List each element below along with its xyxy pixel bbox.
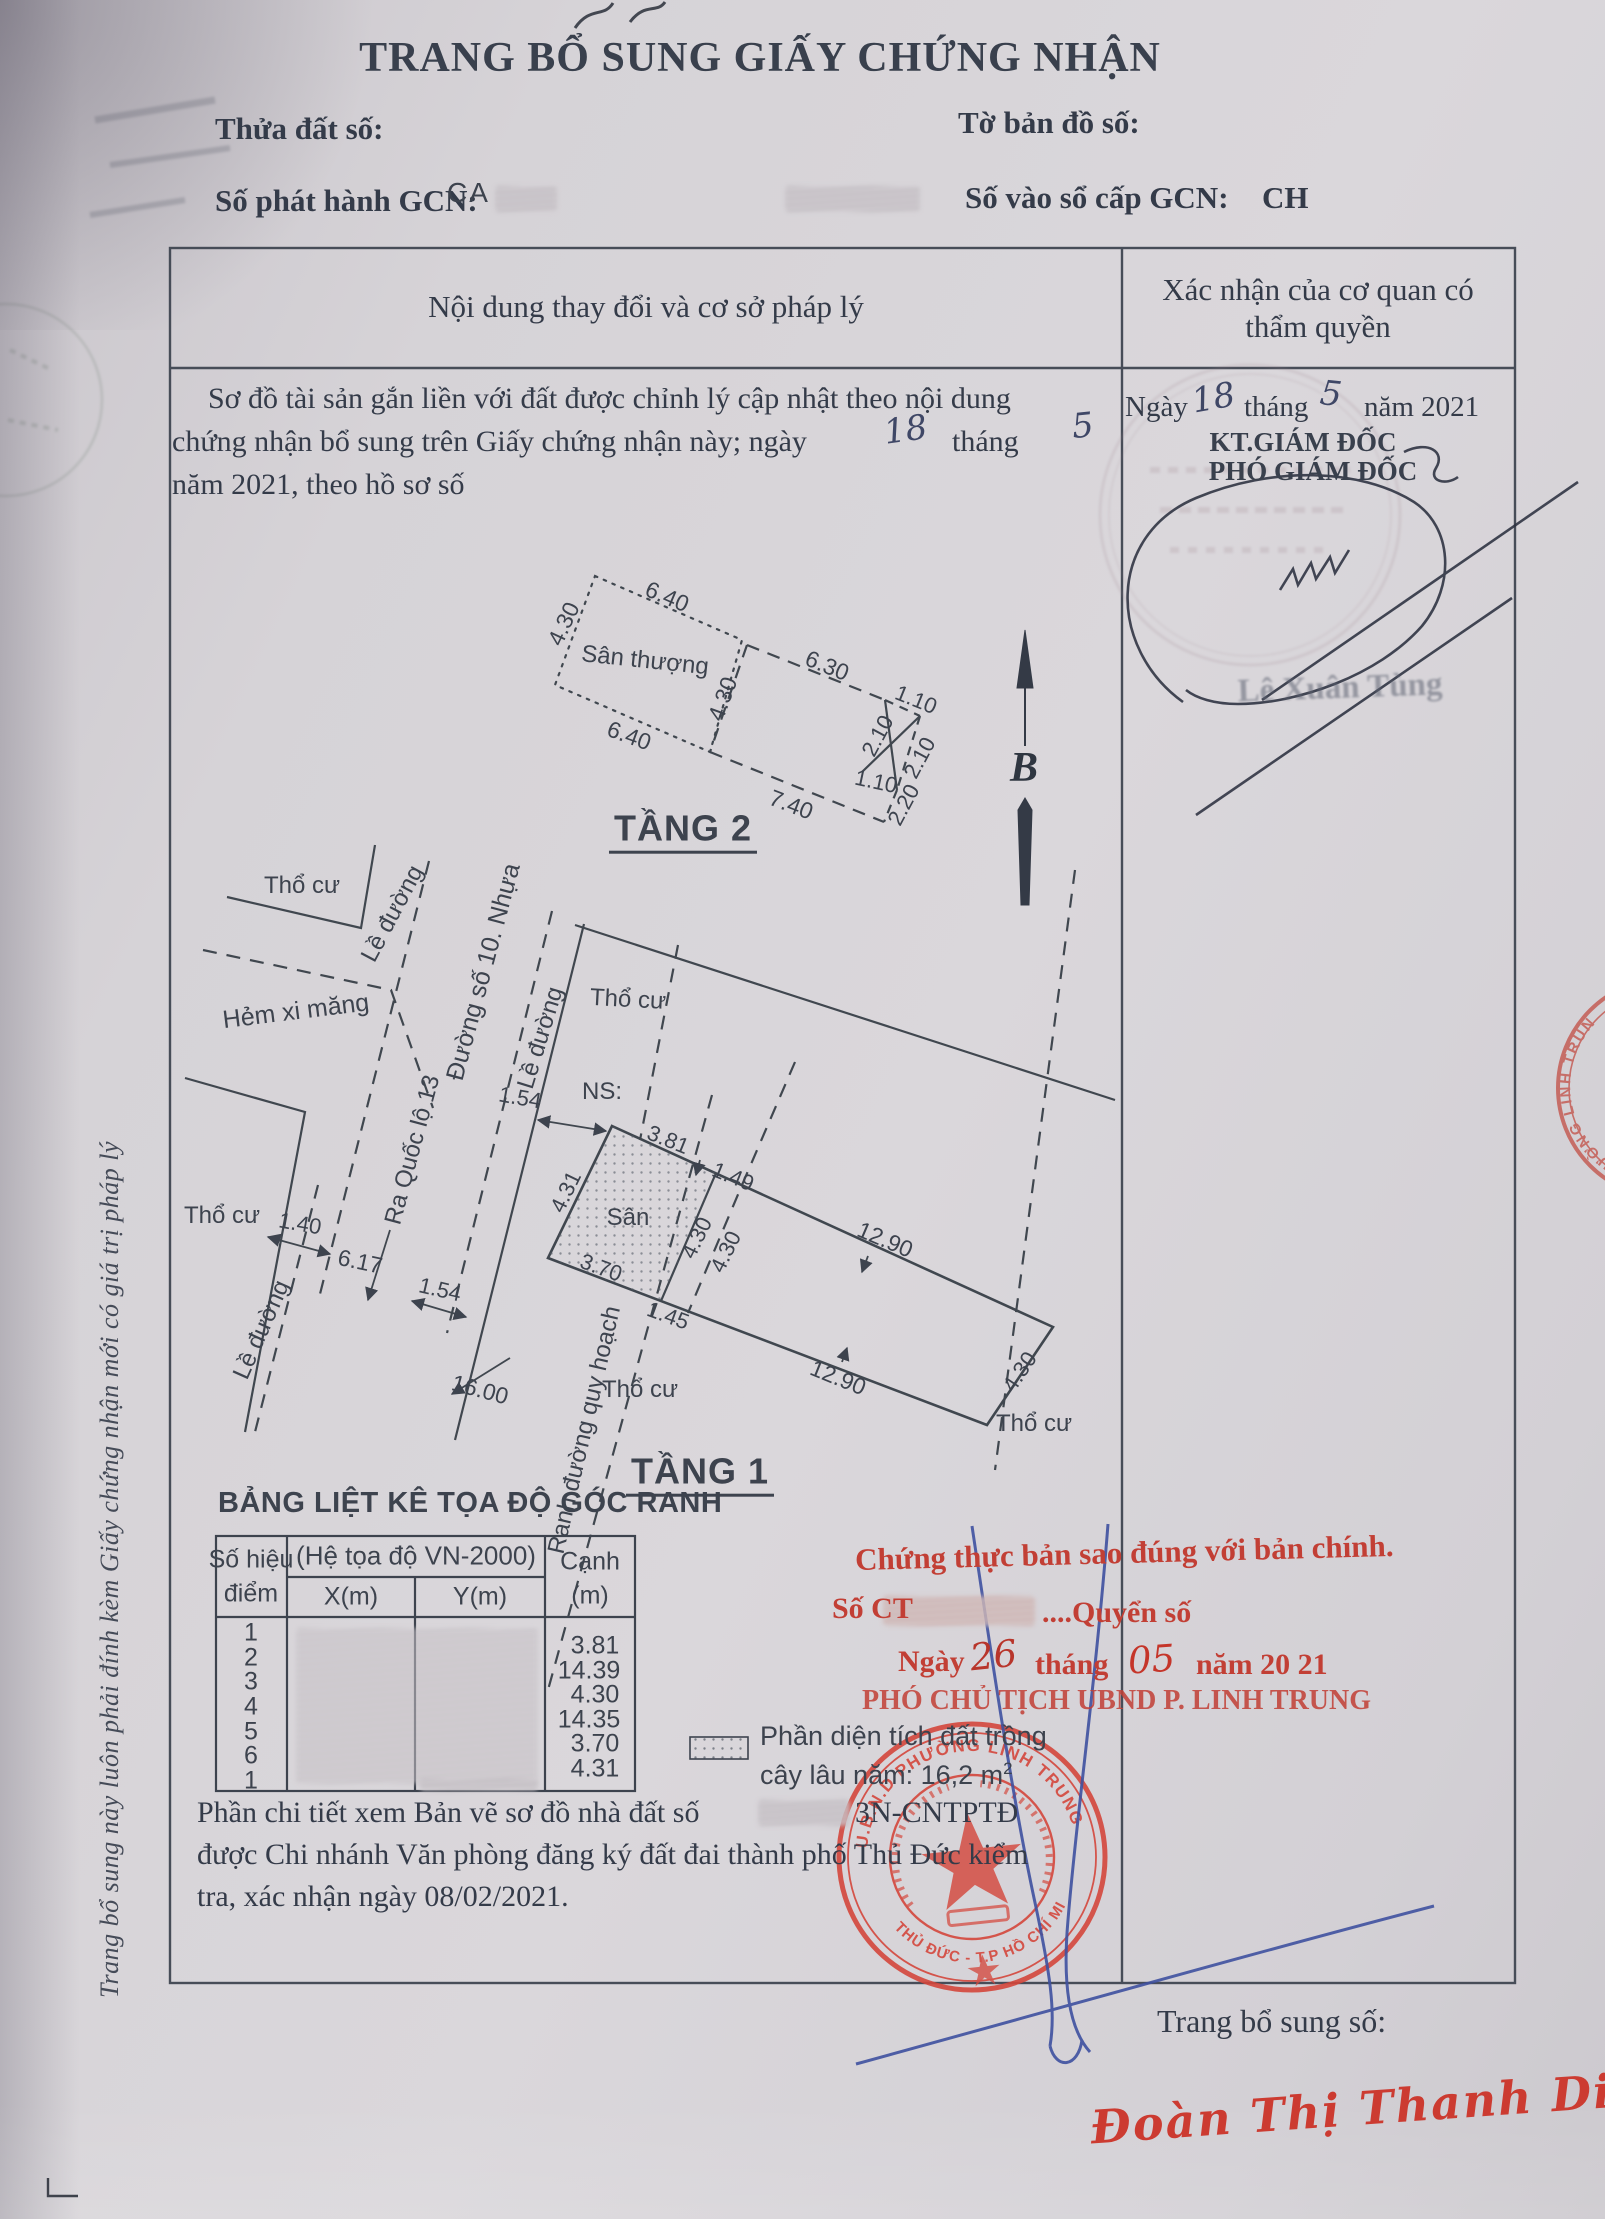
plan1-dim: 1.54 <box>416 1273 463 1306</box>
plan1-tho-cu: Thổ cư <box>602 1377 678 1403</box>
approval-thang: tháng <box>1244 392 1308 424</box>
table-col-right-1: Xác nhận của cơ quan có <box>1162 273 1474 307</box>
plan1-dim: 3.81 <box>644 1121 693 1159</box>
footer-label: Trang bổ sung số: <box>1157 2004 1386 2039</box>
plan1-ns: NS: <box>582 1079 622 1105</box>
plan2-dim: 7.40 <box>766 785 817 825</box>
cert-so-ct: Số CT <box>832 1592 913 1625</box>
note-line-2: được Chi nhánh Văn phòng đăng ký đất đai… <box>197 1838 1028 1871</box>
plan2-dim: 6.40 <box>604 716 655 755</box>
entry-hand-day: 18 <box>882 409 930 452</box>
entry-hand-month: 5 <box>1070 407 1095 446</box>
approval-nam: năm 2021 <box>1364 392 1479 424</box>
table-col-left: Nội dung thay đổi và cơ sở pháp lý <box>428 290 864 324</box>
field-to-ban-do: Tờ bản đồ số: <box>958 106 1140 140</box>
plan2-dim: 4.30 <box>703 674 742 725</box>
note-line-1: Phần chi tiết xem Bản vẽ sơ đồ nhà đất s… <box>197 1796 699 1829</box>
legend-line-2: cây lâu năm: 16,2 m2 <box>760 1760 1013 1791</box>
cert-title: PHÓ CHỦ TỊCH UBND P. LINH TRUNG <box>862 1686 1371 1717</box>
cert-stamp-name: Đoàn Thị Thanh Diệp <box>1089 2062 1605 2154</box>
coord-col-canh-1: Cạnh <box>560 1548 620 1576</box>
cert-nam: năm 20 21 <box>1196 1648 1328 1681</box>
coord-col-y: Y(m) <box>453 1583 507 1611</box>
plan1-tho-cu: Thổ cư <box>589 985 666 1015</box>
plan1-dim: 4.30 <box>998 1347 1042 1396</box>
plan1-hem: Hẻm xi măng <box>221 989 371 1034</box>
plan1-dim: 1.49 <box>709 1158 758 1196</box>
certificate-supplement-page: U.B.N.D PHƯỜNG LINH TRUNG T.P THỦ ĐỨC - … <box>0 0 1605 2219</box>
cert-ngay: Ngày <box>898 1645 965 1678</box>
cert-month: 05 <box>1127 1638 1177 1682</box>
page-title: TRANG BỔ SUNG GIẤY CHỨNG NHẬN <box>359 35 1161 81</box>
plan1-dim: 1.54 <box>497 1082 543 1113</box>
plan2-title: TẦNG 2 <box>609 809 757 854</box>
field-so-phat-hanh: Số phát hành GCN: <box>215 184 478 218</box>
plan2-dim: 1.10 <box>892 681 941 719</box>
field-so-vao-so: Số vào sổ cấp GCN: <box>965 181 1229 215</box>
plan1-ra-quoc-lo: Ra Quốc lộ 13 <box>380 1072 445 1227</box>
coord-col-canh-2: (m) <box>571 1582 608 1610</box>
plan2-dim: 6.40 <box>641 577 692 618</box>
photo-shadow <box>0 0 420 330</box>
plan1-tho-cu: Thổ cư <box>264 873 340 899</box>
field-so-phat-hanh-value: CA <box>447 178 490 209</box>
photo-shadow-left <box>0 0 80 2219</box>
entry-line-2a: chứng nhận bổ sung trên Giấy chứng nhận … <box>172 425 807 458</box>
approval-kt-giam-doc: KT.GIÁM ĐỐC <box>1210 428 1397 458</box>
corner-mark <box>48 2178 78 2196</box>
pen-scribbles-top <box>575 2 665 28</box>
north-letter: B <box>1010 745 1038 791</box>
legend-sup: 2 <box>1003 1759 1012 1778</box>
coord-col-x: X(m) <box>324 1583 378 1611</box>
plan1-dim: 12.90 <box>807 1355 870 1400</box>
cert-thang: tháng <box>1035 1648 1108 1681</box>
plan1-dim: 6.17 <box>335 1245 384 1279</box>
cert-day: 26 <box>968 1634 1019 1679</box>
plan1-duong-so-10: Đường số 10. Nhựa <box>442 860 526 1083</box>
plan1-le-duong: Lề đường <box>229 1277 296 1384</box>
redaction-smear <box>420 1779 538 1791</box>
director-signature <box>1128 447 1578 815</box>
left-edge-stamp <box>0 304 102 496</box>
plan2-dim: 4.30 <box>543 598 585 649</box>
plan1-tho-cu: Thổ cư <box>184 1203 260 1229</box>
plan1-le-duong: Lề đường <box>357 861 430 966</box>
plan2-dim: 1.10 <box>853 766 900 799</box>
plan1-san: Sân <box>607 1205 650 1231</box>
approval-signer-name: Lê Xuân Tùng <box>1237 666 1443 709</box>
plan2-dim: 6.30 <box>802 646 853 686</box>
cert-line-1: Chứng thực bản sao đúng với bản chính. <box>855 1529 1394 1577</box>
legend-swatch <box>690 1737 748 1759</box>
coord-table-heading: BẢNG LIỆT KÊ TỌA ĐỘ GÓC RANH <box>218 1488 722 1520</box>
note-code: 3N-CNTPTĐ <box>855 1796 1018 1829</box>
plan2-dim: 2.10 <box>899 733 940 782</box>
plan1-dim: 1.45 <box>644 1297 693 1334</box>
plan1-dim: 3.70 <box>577 1249 626 1286</box>
field-so-vao-so-value: CH <box>1262 181 1309 215</box>
coord-col-point-2: điểm <box>224 1580 278 1608</box>
edge-seal-arc: ƯỜNG LINH TRUNG <box>0 0 1605 1173</box>
legend-line-2-text: cây lâu năm: 16,2 m <box>760 1760 1003 1790</box>
table-col-right-2: thẩm quyền <box>1245 310 1391 344</box>
plan1-dim: 12.90 <box>854 1217 917 1263</box>
field-thua-dat: Thửa đất số: <box>215 112 383 146</box>
plan1-dim: 1.40 <box>277 1208 323 1239</box>
coord-col-point-1: Số hiệu <box>209 1546 294 1574</box>
entry-line-1: Sơ đồ tài sản gắn liền với đất được chỉn… <box>208 382 1011 415</box>
note-line-3: tra, xác nhận ngày 08/02/2021. <box>197 1880 569 1913</box>
approval-month: 5 <box>1318 375 1343 414</box>
cert-quyen-so: ....Quyển số <box>1042 1596 1191 1629</box>
plan1-dim: 16.00 <box>449 1370 511 1409</box>
redaction-smear <box>495 186 557 212</box>
plan1-le-duong: Lề đường <box>513 984 569 1092</box>
smudges <box>90 100 230 215</box>
coord-col-sys: (Hệ tọa độ VN-2000) <box>296 1542 536 1571</box>
plan1-dim: 4.31 <box>546 1167 587 1216</box>
plan2-room-label: Sân thượng <box>580 641 710 681</box>
approval-day: 18 <box>1189 377 1238 421</box>
coord-edge: 4.31 <box>571 1755 620 1783</box>
entry-line-2b: tháng <box>952 425 1019 458</box>
redaction-smear <box>758 1800 850 1826</box>
redaction-smear-table <box>296 1628 538 1784</box>
plan2-dim: 2.10 <box>857 711 898 760</box>
redaction-smear <box>785 186 920 212</box>
coord-point: 1 <box>244 1767 258 1795</box>
svg-text:ƯỜNG LINH TRUNG: ƯỜNG LINH TRUNG <box>0 0 1605 1173</box>
side-note: Trang bổ sung này luôn phải đính kèm Giấ… <box>96 688 125 1998</box>
legend-line-1: Phần diện tích đất trồng <box>760 1722 1047 1752</box>
entry-line-3: năm 2021, theo hồ sơ số <box>172 468 465 501</box>
approval-pho-giam-doc: PHÓ GIÁM ĐỐC <box>1209 457 1418 487</box>
plan1-tho-cu: Thổ cư <box>996 1411 1072 1437</box>
approval-ngay: Ngày <box>1125 392 1188 424</box>
